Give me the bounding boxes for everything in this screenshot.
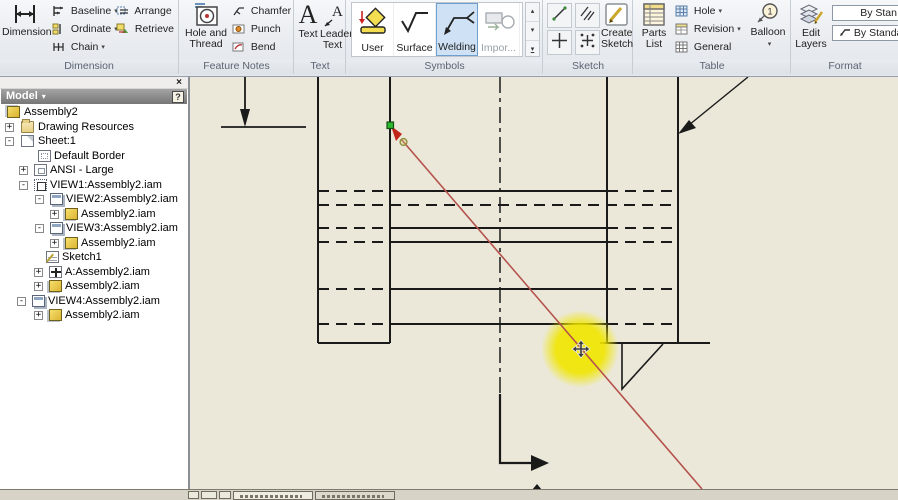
chamfer-icon (232, 5, 245, 17)
svg-text:1: 1 (767, 7, 772, 17)
section-arrow-top (221, 77, 306, 127)
chamfer-button[interactable]: Chamfer (232, 3, 291, 20)
balloon-icon: 1 (755, 2, 781, 26)
tree-item-assembly2-iam[interactable]: + Assembly2.iam (1, 236, 187, 251)
import-symbol-icon (478, 7, 520, 35)
group-label-sketch: Sketch (544, 59, 632, 74)
revision-table-dropdown-icon[interactable]: ▾ (737, 26, 741, 33)
ribbon-group-format: Edit Layers By Stan By Standar Format (792, 0, 898, 74)
retrieve-label: Retrieve (135, 23, 174, 35)
punch-icon (232, 23, 245, 35)
text-label: Text (296, 29, 320, 40)
tree-item-assembly2-iam[interactable]: + Assembly2.iam (1, 308, 187, 323)
hole-and-thread-icon (193, 2, 219, 27)
browser-title: Model (6, 90, 38, 102)
center-mark-button[interactable] (547, 30, 572, 55)
group-label-symbols: Symbols (347, 59, 542, 74)
tree-item-view2[interactable]: - VIEW2:Assembly2.iam (1, 192, 187, 207)
group-label-text: Text (295, 59, 345, 74)
tree-item-ansi-large[interactable]: + ANSI - Large (1, 163, 187, 178)
tree-item-label: VIEW2:Assembly2.iam (66, 192, 178, 207)
drawing-view (190, 77, 898, 489)
centerline-bisector-icon (578, 4, 597, 23)
import-symbol-label: Impor... (478, 42, 519, 54)
view-icon (32, 295, 45, 307)
tree-item-label: Assembly2 (24, 105, 78, 120)
main-area: × Model▾ ? Assembly2 + Drawing Resources… (0, 77, 898, 489)
leader-text-icon: A (322, 2, 344, 28)
view-icon (50, 193, 63, 205)
dimension-label: Dimension (2, 27, 48, 38)
tree-item-label: Assembly2.iam (81, 207, 156, 222)
surface-symbol-label: Surface (394, 42, 435, 54)
assembly-file-icon (49, 309, 62, 321)
expand-toggle[interactable]: + (50, 239, 59, 248)
baseline-label: Baseline (71, 5, 111, 17)
chain-label: Chain (71, 41, 98, 53)
centerline-icon (550, 4, 569, 23)
beam-edges-solid (390, 191, 607, 324)
baseline-icon (52, 5, 65, 17)
tree-item-sketch1[interactable]: Sketch1 (1, 250, 187, 265)
tab-text (322, 495, 384, 498)
surface-symbol-icon (394, 7, 436, 35)
tree-item-view3[interactable]: - VIEW3:Assembly2.iam (1, 221, 187, 236)
text-button[interactable]: A Text (296, 2, 320, 40)
punch-button[interactable]: Punch (232, 21, 281, 38)
ribbon-annotate-tab: Dimension Baseline▾ Ordinate▾ Chain▾ Arr… (0, 0, 898, 77)
weld-leader-preview (387, 122, 702, 489)
ribbon-group-feature-notes: Hole and Thread Chamfer Punch Bend Featu… (180, 0, 294, 74)
chain-button[interactable]: Chain▾ (52, 39, 105, 56)
doc-tile-button[interactable] (201, 491, 217, 499)
balloon-label: Balloon (748, 27, 788, 38)
close-panel-icon[interactable]: × (176, 77, 182, 89)
ribbon-group-text: A Text A Leader Text Text (295, 0, 346, 74)
tree-item-label: VIEW3:Assembly2.iam (66, 221, 178, 236)
tree-item-label: Sheet:1 (38, 134, 76, 149)
tree-item-view1[interactable]: - VIEW1:Assembly2.iam (1, 178, 187, 193)
sheet-icon (21, 135, 34, 147)
symbols-gallery: User Surface Welding (351, 2, 523, 57)
arrange-label: Arrange (134, 5, 171, 17)
section-arrow-bottom (500, 394, 549, 489)
doc-new-button[interactable] (219, 491, 231, 499)
beam-edges-hidden (318, 191, 678, 324)
assembly-file-icon (65, 237, 78, 249)
hole-table-icon (675, 5, 688, 17)
parts-list-icon (642, 2, 666, 27)
ribbon-group-sketch: Create Sketch Sketch (544, 0, 633, 74)
edit-layers-icon (798, 2, 824, 27)
dimension-icon (12, 2, 38, 26)
tree-item-default-border[interactable]: Default Border (1, 149, 187, 164)
object-style-value: By Standar (854, 27, 898, 39)
gallery-scroll-down-icon[interactable]: ▾ (526, 22, 539, 41)
edit-layers-button[interactable]: Edit Layers (794, 2, 828, 50)
assembly-column-edges (318, 77, 678, 343)
centered-pattern-button[interactable] (575, 30, 600, 55)
create-sketch-icon (604, 2, 629, 27)
group-label-table: Table (634, 59, 790, 74)
balloon-dropdown-icon[interactable]: ▾ (768, 41, 772, 48)
general-table-icon (675, 41, 688, 53)
folder-icon (21, 121, 34, 133)
tree-item-sheet1[interactable]: - Sheet:1 (1, 134, 187, 149)
ribbon-group-table: Parts List Hole▾ Revision▾ General 1 (634, 0, 791, 74)
expand-toggle[interactable]: - (5, 137, 14, 146)
hole-table-button[interactable]: Hole▾ (675, 3, 722, 20)
revision-table-button[interactable]: Revision▾ (675, 21, 741, 38)
ribbon-group-dimension: Dimension Baseline▾ Ordinate▾ Chain▾ Arr… (0, 0, 179, 74)
punch-label: Punch (251, 23, 281, 35)
expand-toggle[interactable]: + (5, 123, 14, 132)
welding-symbol-icon (437, 8, 479, 36)
revision-table-icon (675, 23, 688, 35)
dimension-button[interactable]: Dimension (2, 2, 48, 38)
leader-text-button[interactable]: A Leader Text (320, 2, 345, 51)
hole-and-thread-button[interactable]: Hole and Thread (184, 2, 228, 50)
expand-toggle[interactable]: + (34, 311, 43, 320)
symbols-gallery-scroll: ▴ ▾ ▾ (525, 2, 540, 57)
tree-item-label: Assembly2.iam (65, 308, 140, 323)
text-icon: A (296, 2, 320, 28)
retrieve-button[interactable]: Retrieve (116, 21, 174, 38)
chain-icon (52, 41, 65, 53)
centerline-button[interactable] (547, 3, 572, 28)
hole-and-thread-label2: Thread (184, 39, 228, 50)
snap-point (387, 122, 394, 129)
user-symbol-icon (352, 7, 394, 35)
center-mark-icon (550, 31, 569, 50)
layer-style-dropdown[interactable]: By Stan (832, 5, 898, 21)
revision-table-label: Revision (694, 23, 734, 35)
create-sketch-button[interactable]: Create Sketch (601, 2, 631, 50)
expand-toggle[interactable]: - (35, 224, 44, 233)
tree-item-label: Sketch1 (62, 250, 102, 265)
browser-grip[interactable]: × (0, 77, 188, 89)
general-table-label: General (694, 41, 731, 53)
bend-icon (232, 41, 245, 53)
browser-title-bar[interactable]: Model▾ ? (1, 89, 187, 104)
tree-item-label: VIEW1:Assembly2.iam (50, 178, 162, 193)
assembly-file-icon (65, 208, 78, 220)
parts-list-button[interactable]: Parts List (637, 2, 671, 50)
section-view-icon (49, 266, 62, 278)
leader-text-label2: Text (320, 40, 345, 51)
browser-title-dropdown-icon[interactable]: ▾ (42, 92, 46, 101)
expand-toggle[interactable]: + (34, 282, 43, 291)
welding-symbol-label: Welding (437, 41, 477, 53)
tree-item-view4[interactable]: - VIEW4:Assembly2.iam (1, 294, 187, 309)
assembly-icon (7, 106, 20, 118)
centerline-bisector-button[interactable] (575, 3, 600, 28)
tree-item-label: ANSI - Large (50, 163, 114, 178)
bottom-tab-bar (0, 489, 898, 500)
user-symbol-button[interactable]: User (352, 3, 394, 56)
layer-style-value: By Stan (860, 7, 897, 19)
leader-arrow-right (678, 77, 748, 134)
tree-item-assembly2-iam[interactable]: + Assembly2.iam (1, 207, 187, 222)
expand-toggle[interactable]: - (35, 195, 44, 204)
arrange-icon (116, 5, 129, 17)
tree-item-assembly2[interactable]: Assembly2 (1, 105, 187, 120)
document-tab[interactable] (315, 491, 395, 500)
tree-item-label: VIEW4:Assembly2.iam (48, 294, 160, 309)
gallery-scroll-up-icon[interactable]: ▴ (526, 3, 539, 22)
tree-item-drawing-resources[interactable]: + Drawing Resources (1, 120, 187, 135)
object-style-dropdown[interactable]: By Standar (832, 25, 898, 41)
model-tree: Assembly2 + Drawing Resources - Sheet:1 … (1, 105, 187, 489)
retrieve-icon (116, 23, 129, 35)
tree-item-label: A:Assembly2.iam (65, 265, 150, 280)
bend-button[interactable]: Bend (232, 39, 275, 56)
arrange-button[interactable]: Arrange (116, 3, 172, 20)
ribbon-group-symbols: User Surface Welding (347, 0, 543, 74)
gallery-more-icon[interactable]: ▾ (526, 41, 539, 59)
group-label-format: Format (792, 59, 898, 74)
assembly-file-icon (49, 280, 62, 292)
ordinate-label: Ordinate (71, 23, 111, 35)
style-leader-icon (839, 27, 851, 37)
ordinate-button[interactable]: Ordinate▾ (52, 21, 118, 38)
chamfer-label: Chamfer (251, 5, 291, 17)
svg-text:A: A (332, 4, 343, 20)
view1-icon (34, 179, 47, 191)
group-label-feature-notes: Feature Notes (180, 59, 293, 74)
drawing-sheet[interactable] (190, 77, 898, 489)
edit-layers-label2: Layers (794, 39, 828, 50)
expand-toggle[interactable]: - (19, 181, 28, 190)
sketch-icon (46, 251, 59, 263)
group-label-dimension: Dimension (0, 59, 178, 74)
tree-item-assembly2-iam[interactable]: + Assembly2.iam (1, 279, 187, 294)
border-icon (38, 150, 51, 162)
general-table-button[interactable]: General (675, 39, 731, 56)
document-tab-active[interactable] (233, 491, 313, 500)
ordinate-icon (52, 23, 65, 35)
tree-item-label: Assembly2.iam (65, 279, 140, 294)
user-symbol-label: User (352, 42, 393, 54)
create-sketch-label2: Sketch (601, 39, 631, 50)
inventor-window: Dimension Baseline▾ Ordinate▾ Chain▾ Arr… (0, 0, 898, 500)
tree-item-label: Drawing Resources (38, 120, 134, 135)
model-browser-panel: × Model▾ ? Assembly2 + Drawing Resources… (0, 77, 190, 489)
tree-item-label: Default Border (54, 149, 125, 164)
tree-item-a-assembly2-iam[interactable]: + A:Assembly2.iam (1, 265, 187, 280)
import-symbol-button[interactable]: Impor... (478, 3, 520, 56)
surface-symbol-button[interactable]: Surface (394, 3, 436, 56)
bend-label: Bend (251, 41, 276, 53)
hole-table-label: Hole (694, 5, 716, 17)
all-around-circle (400, 139, 407, 146)
baseline-button[interactable]: Baseline▾ (52, 3, 118, 20)
help-button[interactable]: ? (172, 91, 184, 103)
centered-pattern-icon (578, 31, 597, 50)
balloon-button[interactable]: 1 Balloon ▾ (748, 2, 788, 50)
tab-text (240, 495, 302, 498)
expand-toggle[interactable]: + (19, 166, 28, 175)
expand-toggle[interactable]: - (17, 297, 26, 306)
parts-list-label2: List (637, 39, 671, 50)
hole-table-dropdown-icon[interactable]: ▾ (719, 8, 723, 15)
titleblock-icon (34, 164, 47, 176)
expand-toggle[interactable]: + (50, 210, 59, 219)
gusset-triangle (622, 344, 663, 389)
doc-switch-button[interactable] (188, 491, 199, 499)
welding-symbol-button[interactable]: Welding (436, 3, 478, 56)
chain-dropdown-icon[interactable]: ▾ (101, 44, 105, 51)
view-icon (50, 222, 63, 234)
tree-item-label: Assembly2.iam (81, 236, 156, 251)
expand-toggle[interactable]: + (34, 268, 43, 277)
